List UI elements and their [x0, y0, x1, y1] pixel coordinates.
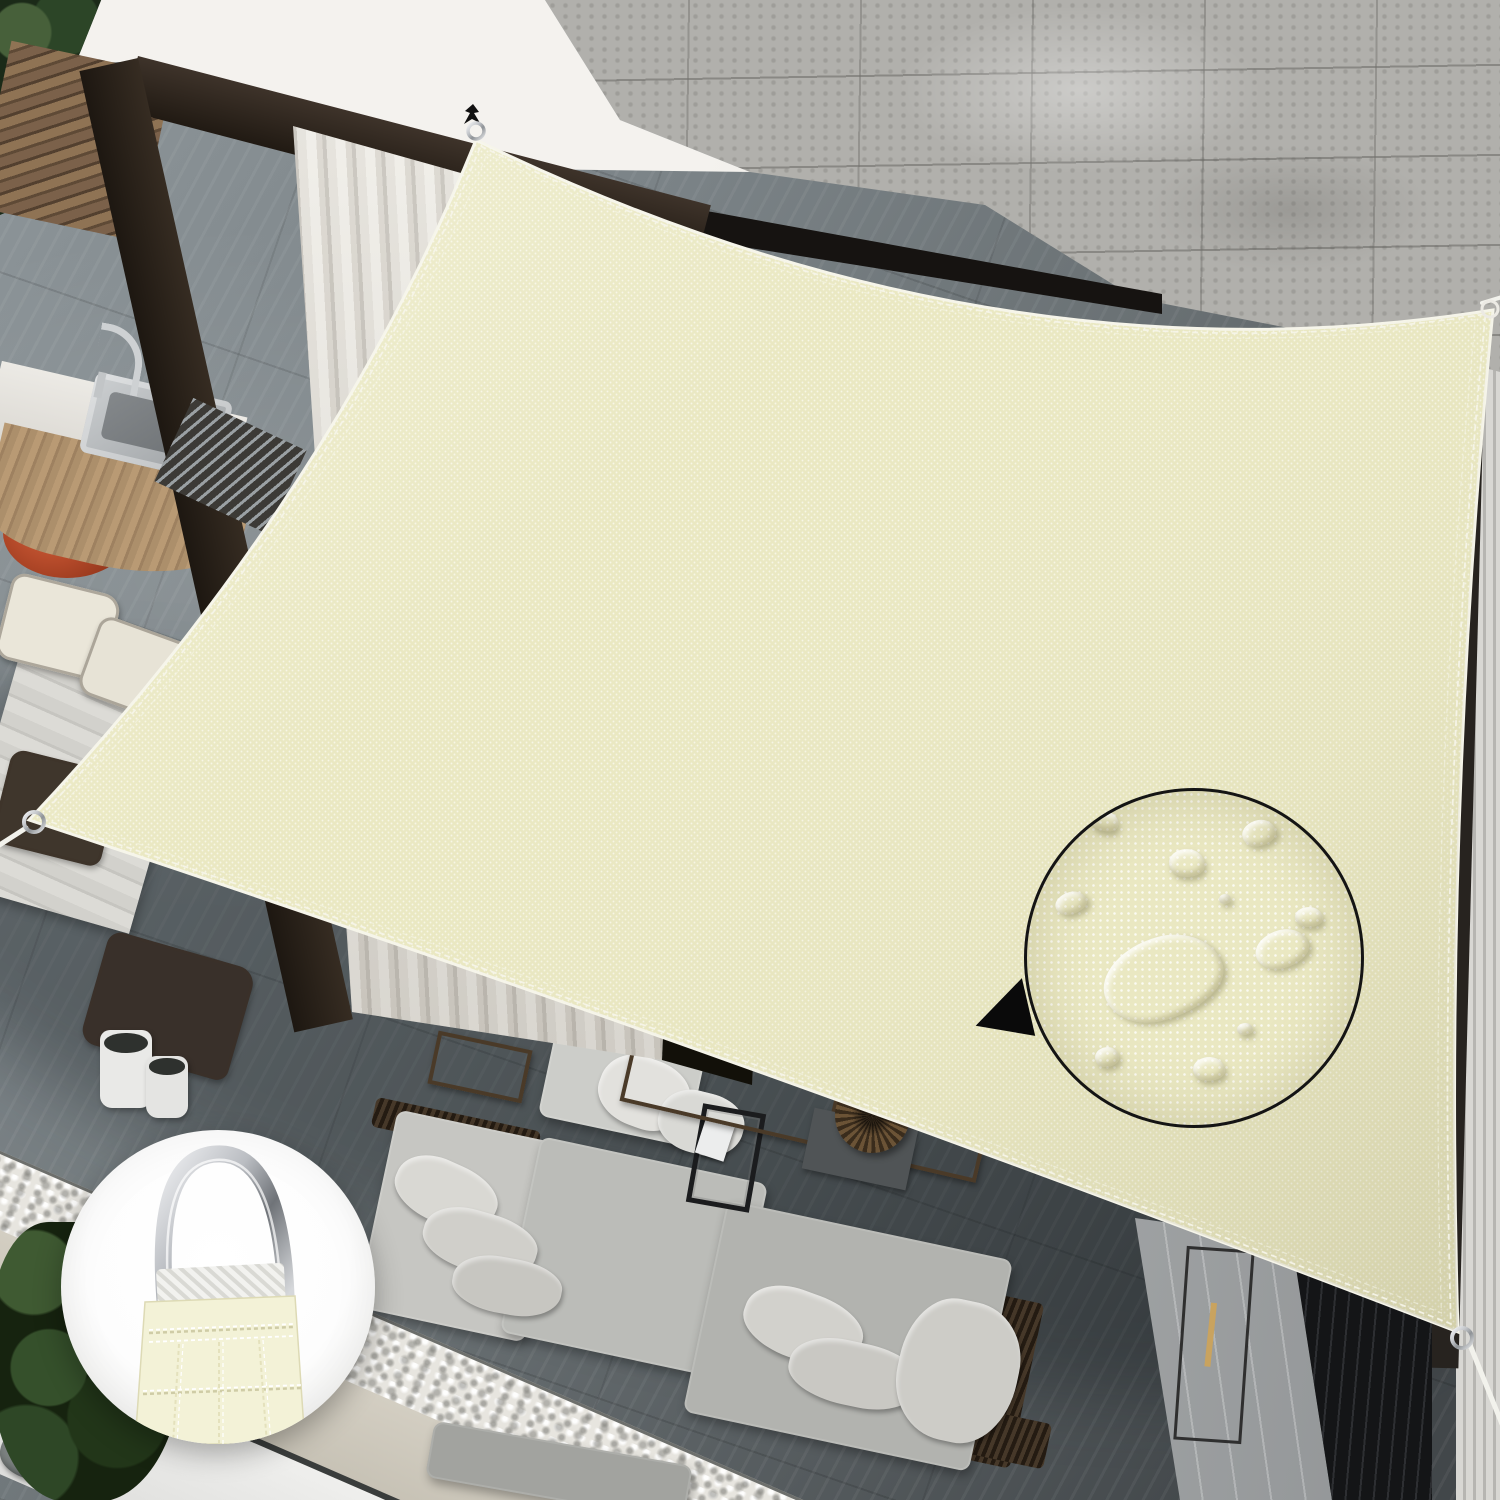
water-droplet	[1237, 1023, 1253, 1035]
water-droplet	[1053, 888, 1089, 917]
bottom-corner-ring	[1452, 1328, 1500, 1424]
water-droplet	[1240, 817, 1278, 849]
waterproof-detail-inset	[1024, 788, 1364, 1128]
d-ring-detail-drawing	[61, 1130, 375, 1444]
d-ring-detail-inset	[61, 1130, 375, 1444]
water-droplet	[1219, 894, 1231, 904]
water-droplet	[1167, 847, 1207, 880]
product-photo	[0, 0, 1500, 1500]
water-droplet	[1095, 1047, 1119, 1067]
water-droplet	[1251, 924, 1313, 974]
water-droplet	[1192, 1056, 1226, 1082]
top-corner-anchor	[464, 104, 484, 139]
water-droplet	[1294, 906, 1324, 929]
water-droplet	[1093, 922, 1233, 1034]
